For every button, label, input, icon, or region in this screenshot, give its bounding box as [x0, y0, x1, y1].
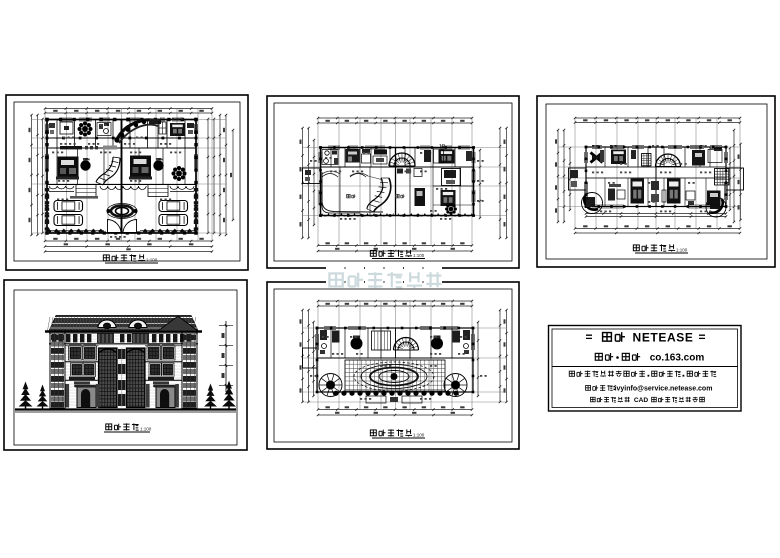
svg-text:1:100: 1:100	[140, 427, 152, 432]
svg-text:=: =	[698, 330, 705, 344]
svg-text:1:100: 1:100	[413, 433, 425, 438]
svg-text:CAD: CAD	[634, 397, 649, 404]
svg-text:1:100: 1:100	[146, 258, 158, 263]
svg-text:=: =	[585, 330, 592, 344]
svg-text:1:100: 1:100	[676, 248, 688, 253]
svg-text:co.163.com: co.163.com	[650, 353, 705, 364]
svg-text:ivyinfo@service.netease.com: ivyinfo@service.netease.com	[615, 386, 713, 393]
svg-text:NETEASE: NETEASE	[633, 331, 694, 345]
svg-text:1:100: 1:100	[413, 253, 425, 258]
